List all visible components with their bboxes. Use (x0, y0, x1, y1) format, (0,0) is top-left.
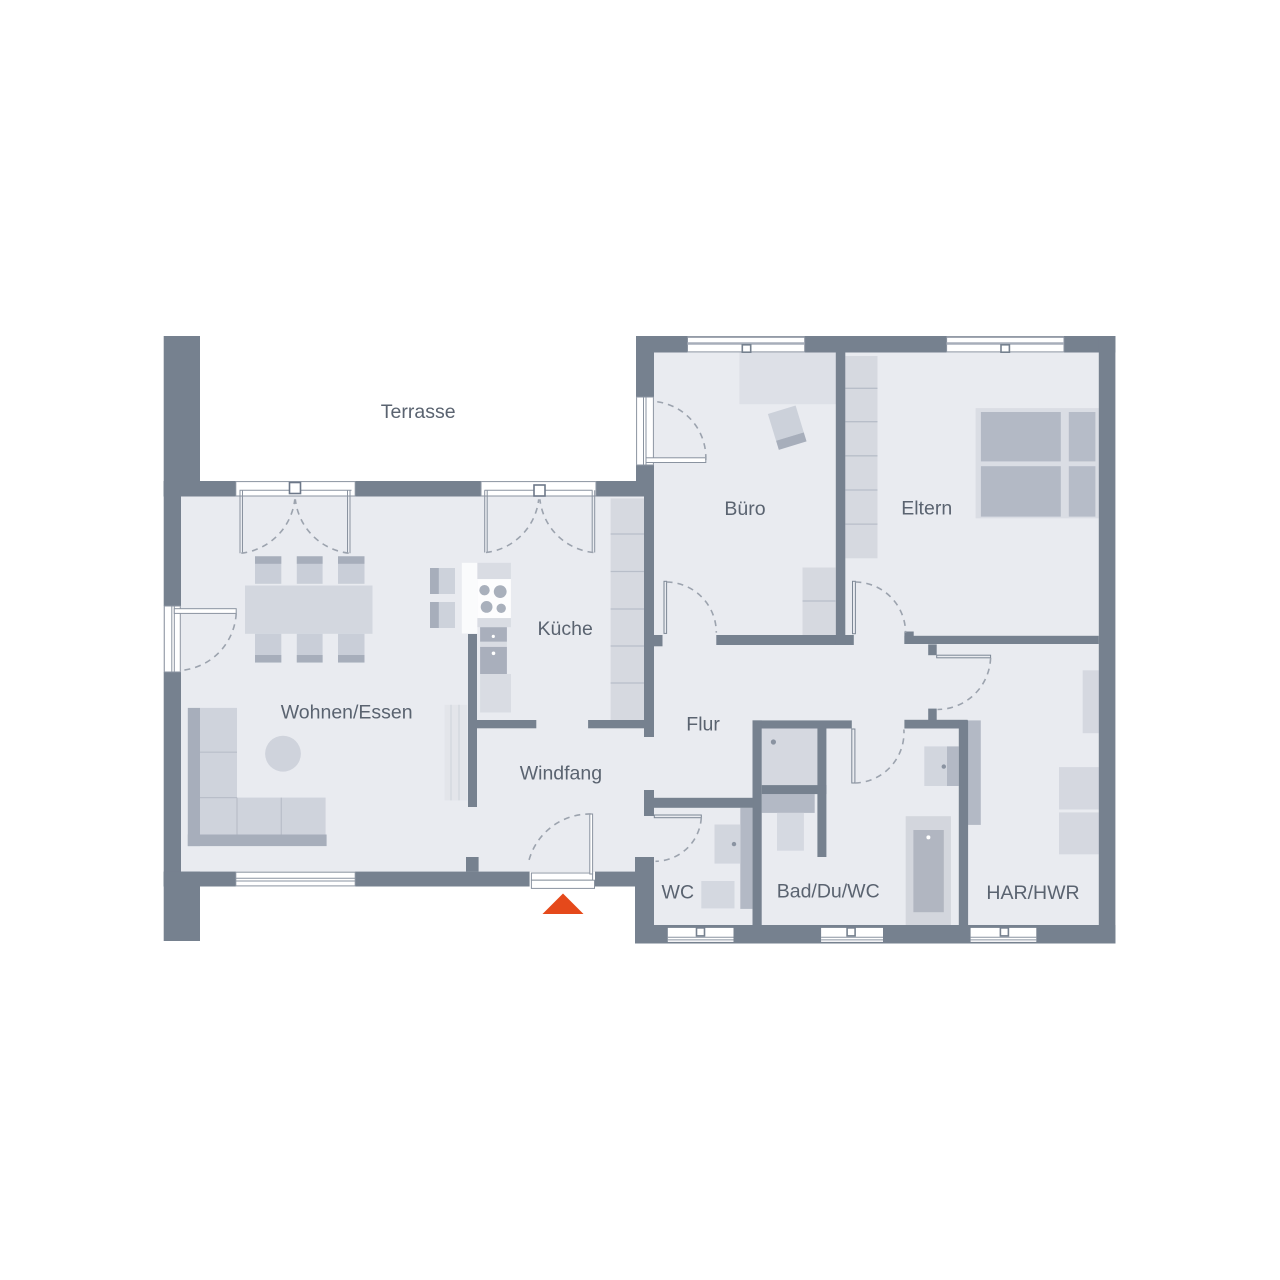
svg-text:Terrasse: Terrasse (381, 401, 456, 423)
svg-text:Küche: Küche (538, 618, 593, 640)
svg-text:Windfang: Windfang (520, 763, 602, 785)
svg-text:Büro: Büro (724, 498, 765, 520)
svg-text:Eltern: Eltern (901, 497, 952, 519)
svg-text:WC: WC (662, 882, 695, 904)
svg-text:Flur: Flur (686, 714, 720, 736)
svg-text:Wohnen/Essen: Wohnen/Essen (281, 702, 413, 724)
svg-text:Bad/Du/WC: Bad/Du/WC (777, 881, 880, 903)
svg-text:HAR/HWR: HAR/HWR (986, 882, 1079, 904)
